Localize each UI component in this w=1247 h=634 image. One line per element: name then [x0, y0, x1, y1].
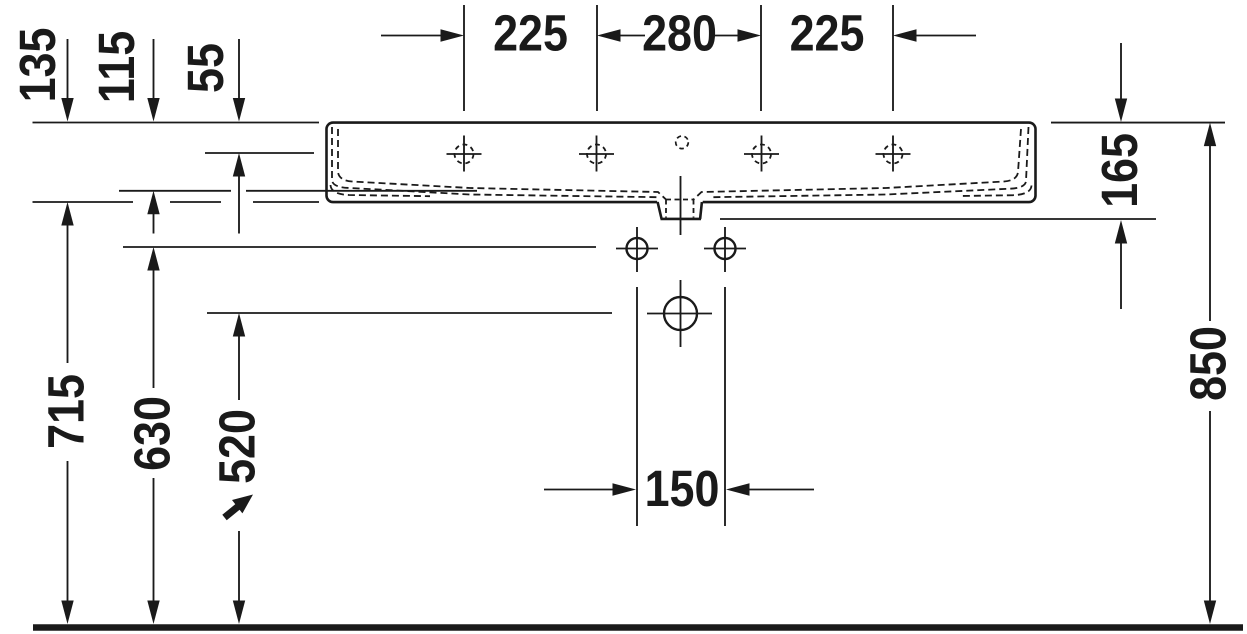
svg-text:115: 115 [90, 31, 146, 103]
svg-text:225: 225 [790, 6, 865, 62]
svg-text:150: 150 [645, 462, 720, 518]
svg-text:520: 520 [210, 409, 266, 484]
svg-text:850: 850 [1181, 326, 1237, 401]
svg-text:630: 630 [125, 396, 181, 471]
svg-text:165: 165 [1093, 133, 1149, 208]
svg-text:715: 715 [39, 374, 95, 449]
svg-text:135: 135 [11, 28, 67, 103]
svg-text:280: 280 [642, 6, 717, 62]
svg-text:55: 55 [179, 43, 235, 93]
svg-text:225: 225 [493, 6, 568, 62]
